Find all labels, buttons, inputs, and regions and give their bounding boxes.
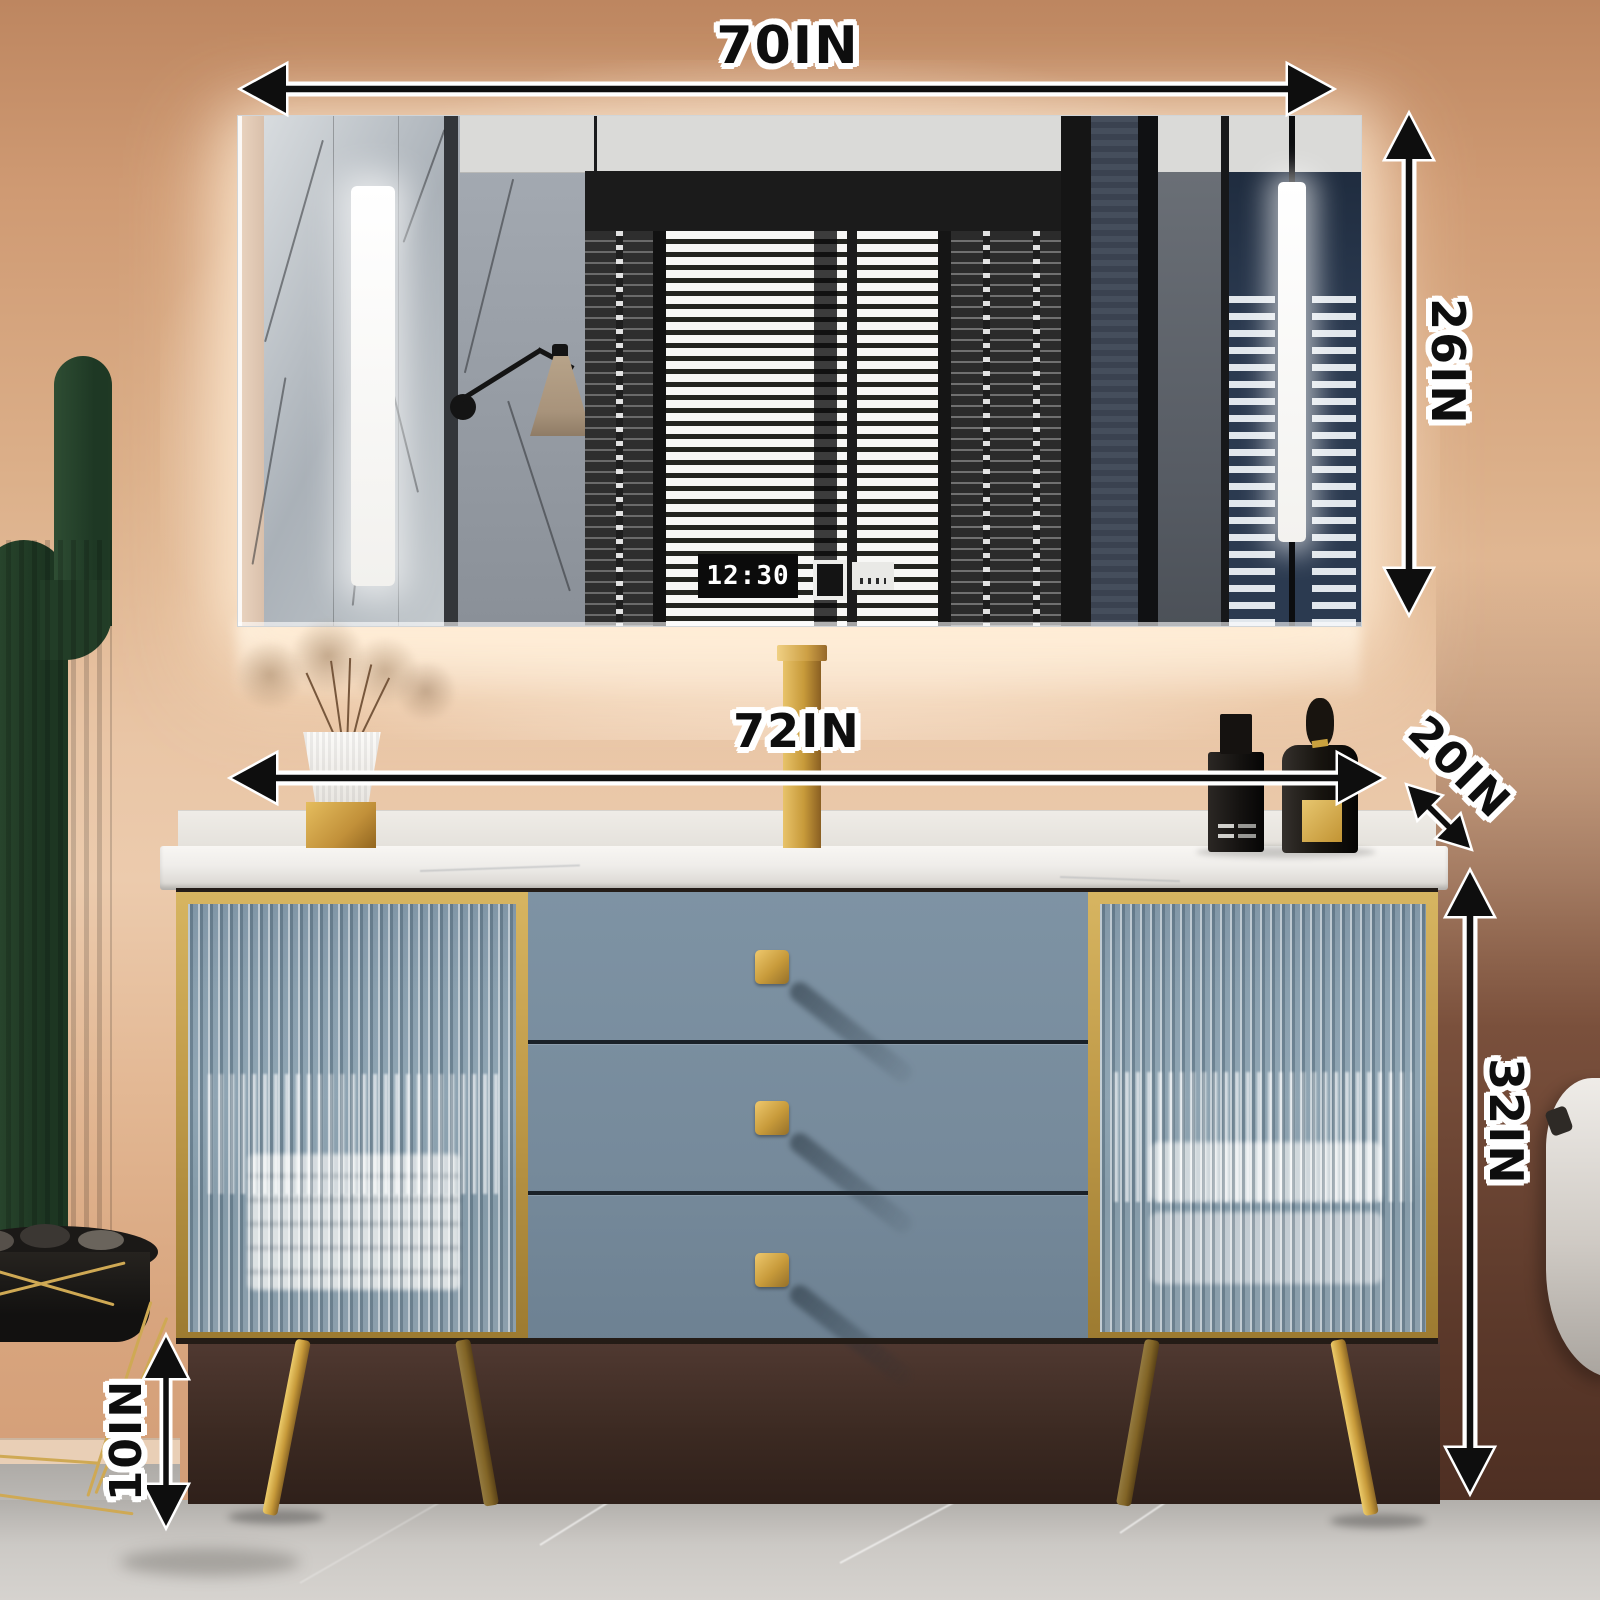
blind-tape	[616, 231, 623, 626]
sliding-door-frame	[1221, 116, 1229, 626]
sliding-door-glass	[1091, 116, 1138, 626]
blind-tape	[983, 231, 990, 626]
mirror-edge-light	[238, 116, 242, 626]
perfume-gold-label	[1302, 800, 1342, 842]
dimension-label-vanity-height: 32IN	[1483, 1058, 1529, 1186]
led-strip-right	[1278, 182, 1306, 542]
mirror-cabinet: 12:30	[237, 115, 1362, 627]
dimension-label-mirror-width: 70IN	[716, 20, 859, 72]
stripe-band	[1312, 296, 1356, 626]
drawer-knob	[755, 950, 789, 984]
sliding-door-frame	[1061, 116, 1091, 626]
stripe-band	[1229, 296, 1275, 626]
lamp-shade	[530, 356, 592, 436]
defogger-icon	[852, 562, 894, 590]
drawer-knob	[755, 1101, 789, 1135]
bottle-label-line	[1238, 824, 1256, 828]
fluted-glass-texture	[1100, 904, 1426, 1332]
sliding-door-panel	[1158, 172, 1221, 626]
clock-display: 12:30	[698, 554, 798, 598]
vanity-cabinet	[176, 892, 1438, 1344]
right-glass-door	[1088, 892, 1438, 1344]
pendant-rod	[1289, 542, 1295, 626]
product-dimension-scene: 12:30	[0, 0, 1600, 1600]
bottle-label-line	[1218, 824, 1234, 828]
bottle-label-line	[1238, 834, 1256, 838]
window-mullion	[653, 231, 666, 626]
leg-shadow	[1330, 1514, 1426, 1528]
drawer-divider	[528, 1191, 1088, 1195]
lamp-arm	[459, 348, 542, 403]
bottle-label-line	[1218, 834, 1234, 838]
under-vanity-shadow	[188, 1342, 1440, 1504]
touch-control-icon	[813, 560, 847, 600]
panel-seam	[333, 116, 334, 626]
blind-tape	[1033, 231, 1040, 626]
led-strip-left	[351, 186, 395, 586]
stand-wire	[0, 1452, 100, 1465]
cactus-plant	[0, 350, 160, 1250]
window-blinds-dark	[951, 231, 1061, 626]
panel-seam	[398, 116, 399, 626]
drawer-stack	[528, 892, 1088, 1344]
sliding-door-frame	[1138, 116, 1158, 626]
window-mullion	[938, 231, 951, 626]
dimension-label-leg-height: 10IN	[105, 1379, 149, 1501]
left-glass-door	[176, 892, 528, 1344]
fluted-glass-texture	[188, 904, 516, 1332]
drawer-divider	[528, 1040, 1088, 1044]
dried-flower	[395, 660, 457, 722]
faucet-top	[777, 645, 827, 661]
vase-gold-base	[306, 802, 376, 848]
cabinet-bottom-seam	[176, 1338, 1438, 1344]
dimension-label-mirror-height: 26IN	[1425, 298, 1471, 426]
window-top-frame	[585, 171, 1061, 231]
pendant-rod	[1289, 116, 1295, 186]
drawer-knob	[755, 1253, 789, 1287]
dimension-label-vanity-width: 72IN	[733, 708, 861, 754]
perfume-cap-small	[1220, 714, 1252, 754]
